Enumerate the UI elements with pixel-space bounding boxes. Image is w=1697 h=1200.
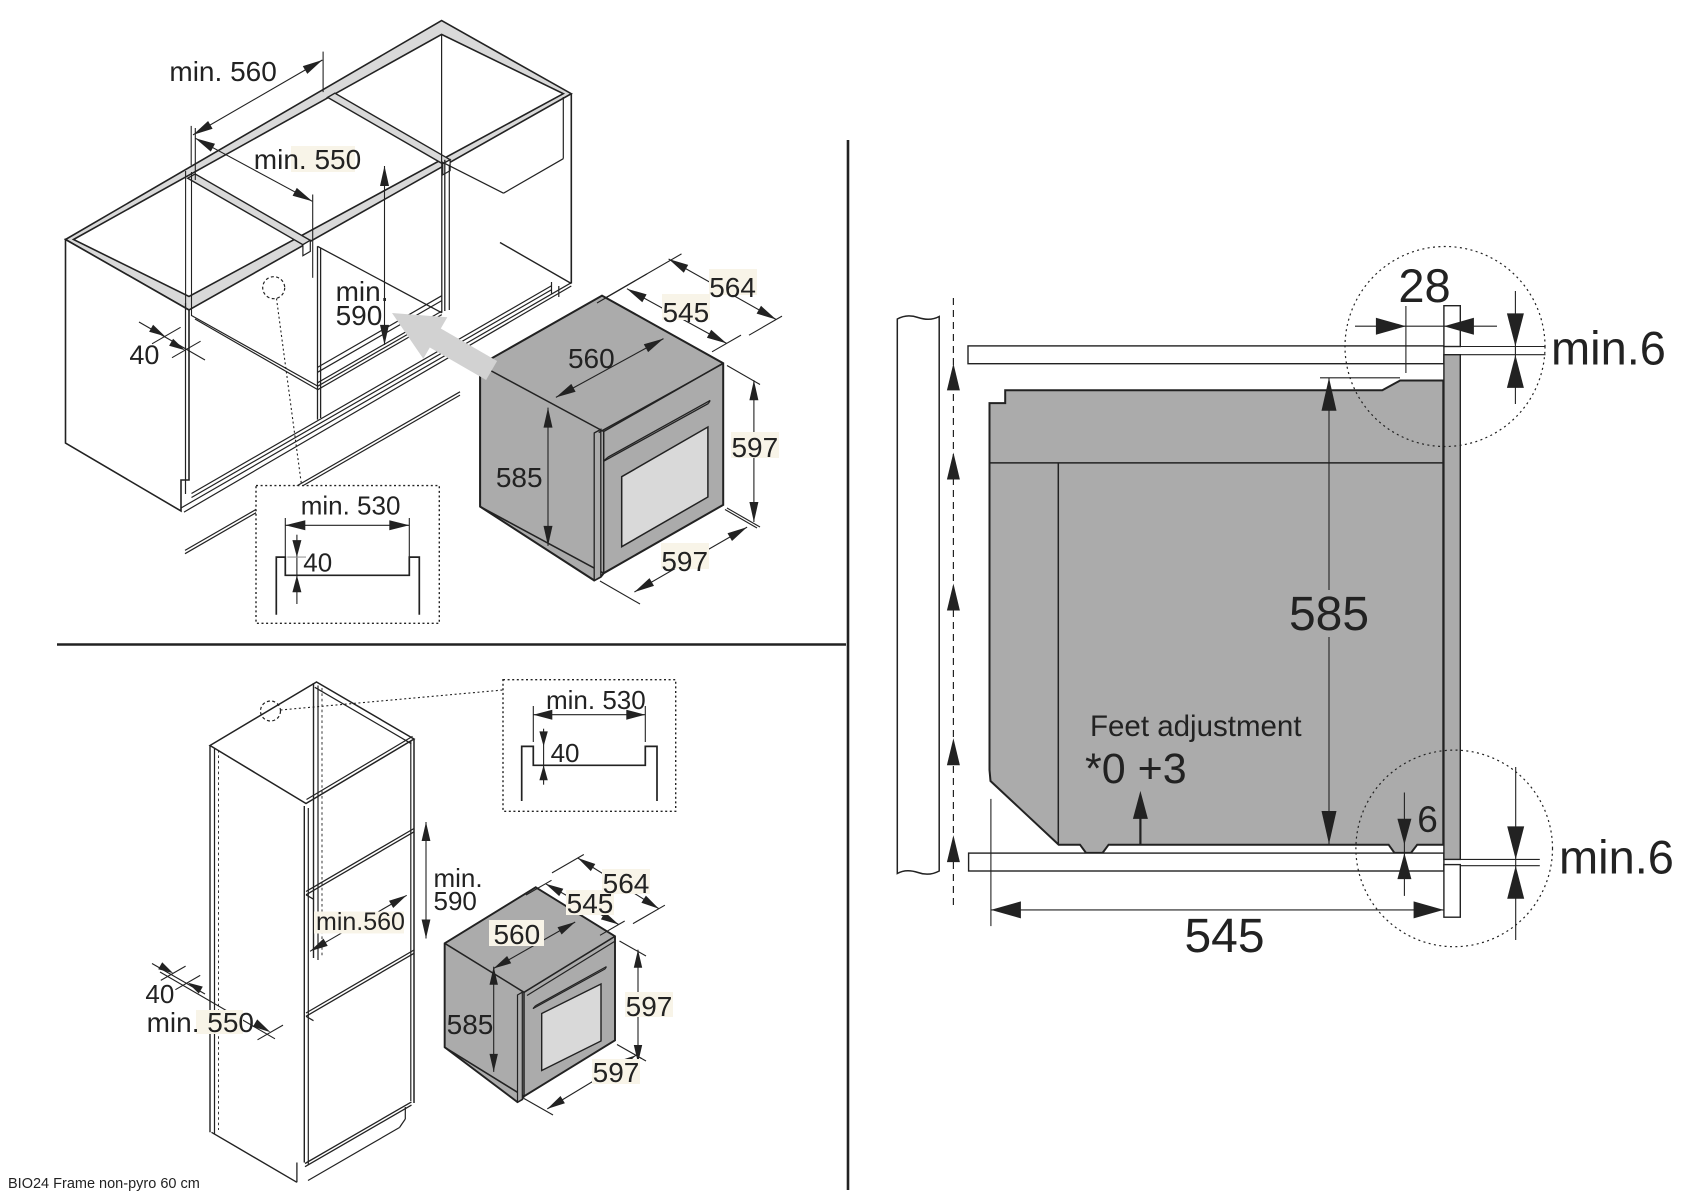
svg-text:min. 550: min. 550 (147, 1007, 254, 1038)
svg-text:min.560: min.560 (316, 908, 405, 936)
svg-text:40: 40 (303, 548, 332, 578)
svg-text:590: 590 (336, 300, 383, 331)
svg-text:560: 560 (493, 919, 540, 950)
svg-text:min.6: min.6 (1559, 831, 1674, 884)
svg-text:597: 597 (626, 991, 673, 1022)
svg-text:585: 585 (447, 1009, 494, 1040)
svg-text:597: 597 (661, 546, 708, 577)
svg-text:545: 545 (662, 297, 709, 328)
svg-text:564: 564 (709, 272, 756, 303)
svg-text:564: 564 (603, 868, 650, 899)
svg-text:590: 590 (434, 886, 477, 916)
svg-text:*0 +3: *0 +3 (1085, 745, 1187, 793)
svg-text:min. 560: min. 560 (169, 56, 276, 87)
svg-text:28: 28 (1398, 259, 1450, 312)
svg-text:Feet adjustment: Feet adjustment (1090, 710, 1302, 743)
svg-text:min. 530: min. 530 (546, 685, 646, 715)
svg-text:585: 585 (496, 462, 543, 493)
svg-text:min. 530: min. 530 (301, 490, 401, 520)
svg-text:560: 560 (568, 343, 615, 374)
svg-text:597: 597 (731, 432, 778, 463)
svg-text:BIO24 Frame non-pyro 60 cm: BIO24 Frame non-pyro 60 cm (8, 1176, 200, 1192)
svg-text:40: 40 (551, 738, 580, 768)
svg-text:min. 550: min. 550 (254, 144, 361, 175)
svg-text:597: 597 (593, 1057, 640, 1088)
svg-text:585: 585 (1289, 588, 1369, 641)
svg-text:545: 545 (1184, 910, 1264, 963)
svg-text:40: 40 (145, 979, 174, 1009)
svg-text:min.6: min.6 (1551, 322, 1666, 375)
svg-text:40: 40 (129, 340, 159, 370)
svg-text:6: 6 (1417, 799, 1438, 840)
